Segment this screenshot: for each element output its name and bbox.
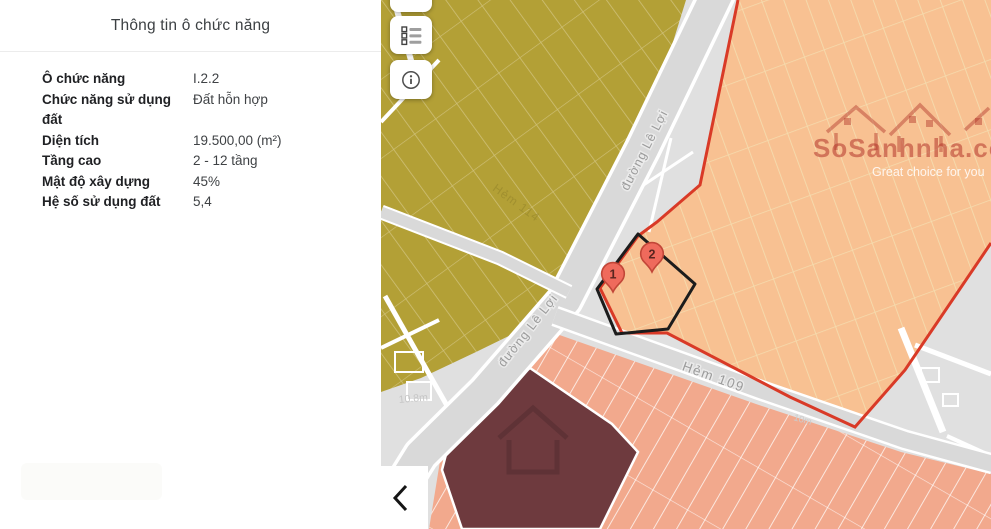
row-label: Chức năng sử dụng đất <box>42 90 193 131</box>
info-button[interactable] <box>390 60 432 99</box>
row-value: Đất hỗn hợp <box>193 90 371 131</box>
marker-number: 1 <box>610 268 617 282</box>
app-window: Thông tin ô chức năng Ô chức năng I.2.2 … <box>0 0 991 529</box>
row-value: 45% <box>193 172 371 193</box>
row-label: Tầng cao <box>42 151 193 172</box>
row-value: 5,4 <box>193 192 371 213</box>
row-label: Ô chức năng <box>42 69 193 90</box>
info-row-density: Mật độ xây dựng 45% <box>42 172 371 193</box>
watermark-brand: SoSanhnha.com <box>813 133 991 163</box>
info-rows: Ô chức năng I.2.2 Chức năng sử dụng đất … <box>0 52 381 213</box>
legend-list-icon <box>401 25 422 46</box>
marker-number: 2 <box>649 248 656 262</box>
row-label: Mật độ xây dựng <box>42 172 193 193</box>
info-row-height: Tầng cao 2 - 12 tầng <box>42 151 371 172</box>
info-row-area: Diện tích 19.500,00 (m²) <box>42 131 371 152</box>
chevron-left-icon <box>391 482 409 514</box>
info-icon <box>401 70 421 90</box>
map-button-partial[interactable] <box>390 0 432 12</box>
watermark-tagline: Great choice for you <box>872 165 985 179</box>
dimension-label-108: 10.8m <box>398 391 428 406</box>
info-panel: Thông tin ô chức năng Ô chức năng I.2.2 … <box>0 0 381 529</box>
info-row-function-cell: Ô chức năng I.2.2 <box>42 69 371 90</box>
panel-placeholder <box>21 463 162 500</box>
legend-button[interactable] <box>390 16 432 54</box>
panel-title: Thông tin ô chức năng <box>111 17 270 35</box>
collapse-panel-button[interactable] <box>381 466 428 529</box>
row-label: Hệ số sử dụng đất <box>42 192 193 213</box>
info-row-land-use: Chức năng sử dụng đất Đất hỗn hợp <box>42 90 371 131</box>
row-value: I.2.2 <box>193 69 371 90</box>
row-value: 2 - 12 tầng <box>193 151 371 172</box>
panel-header: Thông tin ô chức năng <box>0 0 381 52</box>
map-area[interactable]: đường Lê Lợi đường Lê Lợi Hẻm 109 Hẻm 11… <box>381 0 991 529</box>
info-row-far: Hệ số sử dụng đất 5,4 <box>42 192 371 213</box>
map-canvas[interactable]: đường Lê Lợi đường Lê Lợi Hẻm 109 Hẻm 11… <box>381 0 991 529</box>
row-label: Diện tích <box>42 131 193 152</box>
row-value: 19.500,00 (m²) <box>193 131 371 152</box>
